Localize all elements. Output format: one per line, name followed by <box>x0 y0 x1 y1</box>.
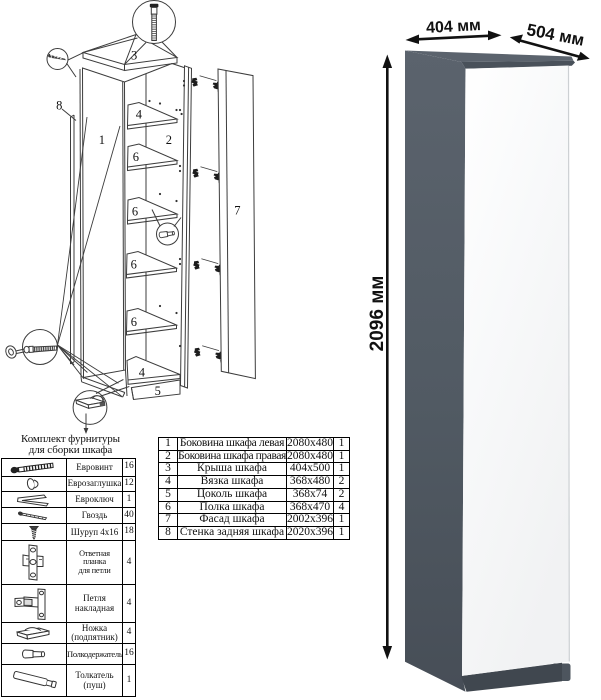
svg-text:3: 3 <box>131 49 137 63</box>
svg-text:2: 2 <box>166 133 172 147</box>
svg-text:404 мм: 404 мм <box>426 17 482 37</box>
svg-text:6: 6 <box>132 205 138 219</box>
svg-text:8: 8 <box>56 98 62 112</box>
svg-text:7: 7 <box>234 203 240 217</box>
svg-text:2096 мм: 2096 мм <box>367 276 388 352</box>
svg-text:6: 6 <box>131 315 137 329</box>
svg-text:6: 6 <box>131 257 137 271</box>
svg-text:1: 1 <box>99 133 105 147</box>
svg-text:4: 4 <box>136 108 143 122</box>
svg-text:5: 5 <box>155 384 161 398</box>
svg-text:4: 4 <box>139 365 146 379</box>
svg-text:6: 6 <box>133 150 139 164</box>
